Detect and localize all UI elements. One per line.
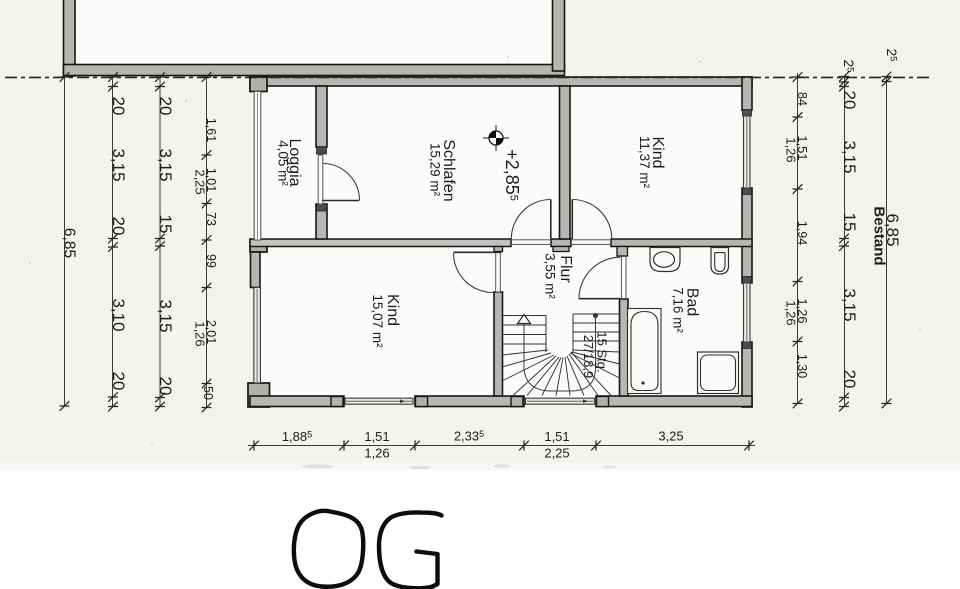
svg-text:3,55 m²: 3,55 m² [543,253,558,299]
svg-text:2,25: 2,25 [544,446,569,461]
svg-text:1,26: 1,26 [364,446,389,461]
svg-text:+2,855: +2,855 [502,149,522,201]
svg-text:99: 99 [204,254,218,268]
svg-text:15: 15 [156,215,175,234]
svg-text:1,51: 1,51 [544,429,569,444]
svg-text:15,07 m²: 15,07 m² [370,294,385,348]
svg-text:84: 84 [795,92,809,106]
svg-text:20: 20 [109,97,128,116]
svg-text:3,15: 3,15 [156,148,175,181]
svg-text:11,37 m²: 11,37 m² [637,136,652,189]
svg-text:20: 20 [840,370,859,389]
svg-text:Kind: Kind [384,294,401,326]
svg-text:50: 50 [201,386,215,400]
svg-text:3,15: 3,15 [840,288,859,321]
svg-text:20: 20 [109,217,128,236]
svg-text:Bestand: Bestand [871,206,888,265]
svg-text:20: 20 [109,372,128,391]
svg-text:1,94: 1,94 [795,221,809,245]
svg-text:20: 20 [156,97,175,116]
svg-text:20: 20 [156,377,175,396]
svg-text:3,15: 3,15 [109,148,128,181]
svg-text:73: 73 [204,212,218,226]
svg-text:1,26: 1,26 [784,300,799,325]
svg-text:1,51: 1,51 [364,429,389,444]
svg-text:4,05 m²: 4,05 m² [276,140,291,186]
svg-text:6,85: 6,85 [61,228,78,258]
svg-text:1,61: 1,61 [204,118,218,142]
svg-text:15,29 m²: 15,29 m² [428,143,443,197]
svg-text:15: 15 [840,213,859,232]
svg-text:3,15: 3,15 [840,140,859,173]
svg-text:1,26: 1,26 [784,137,799,162]
svg-text:3,10: 3,10 [109,298,128,331]
svg-text:20: 20 [840,91,859,110]
svg-text:3,25: 3,25 [658,429,683,444]
svg-text:2,25: 2,25 [193,169,208,194]
svg-text:27/18,9: 27/18,9 [581,335,596,378]
svg-text:3,15: 3,15 [156,299,175,332]
svg-text:1,26: 1,26 [193,321,208,346]
svg-text:7,16 m²: 7,16 m² [671,287,686,333]
svg-text:Flur: Flur [557,255,574,283]
svg-text:1,30: 1,30 [795,354,809,378]
